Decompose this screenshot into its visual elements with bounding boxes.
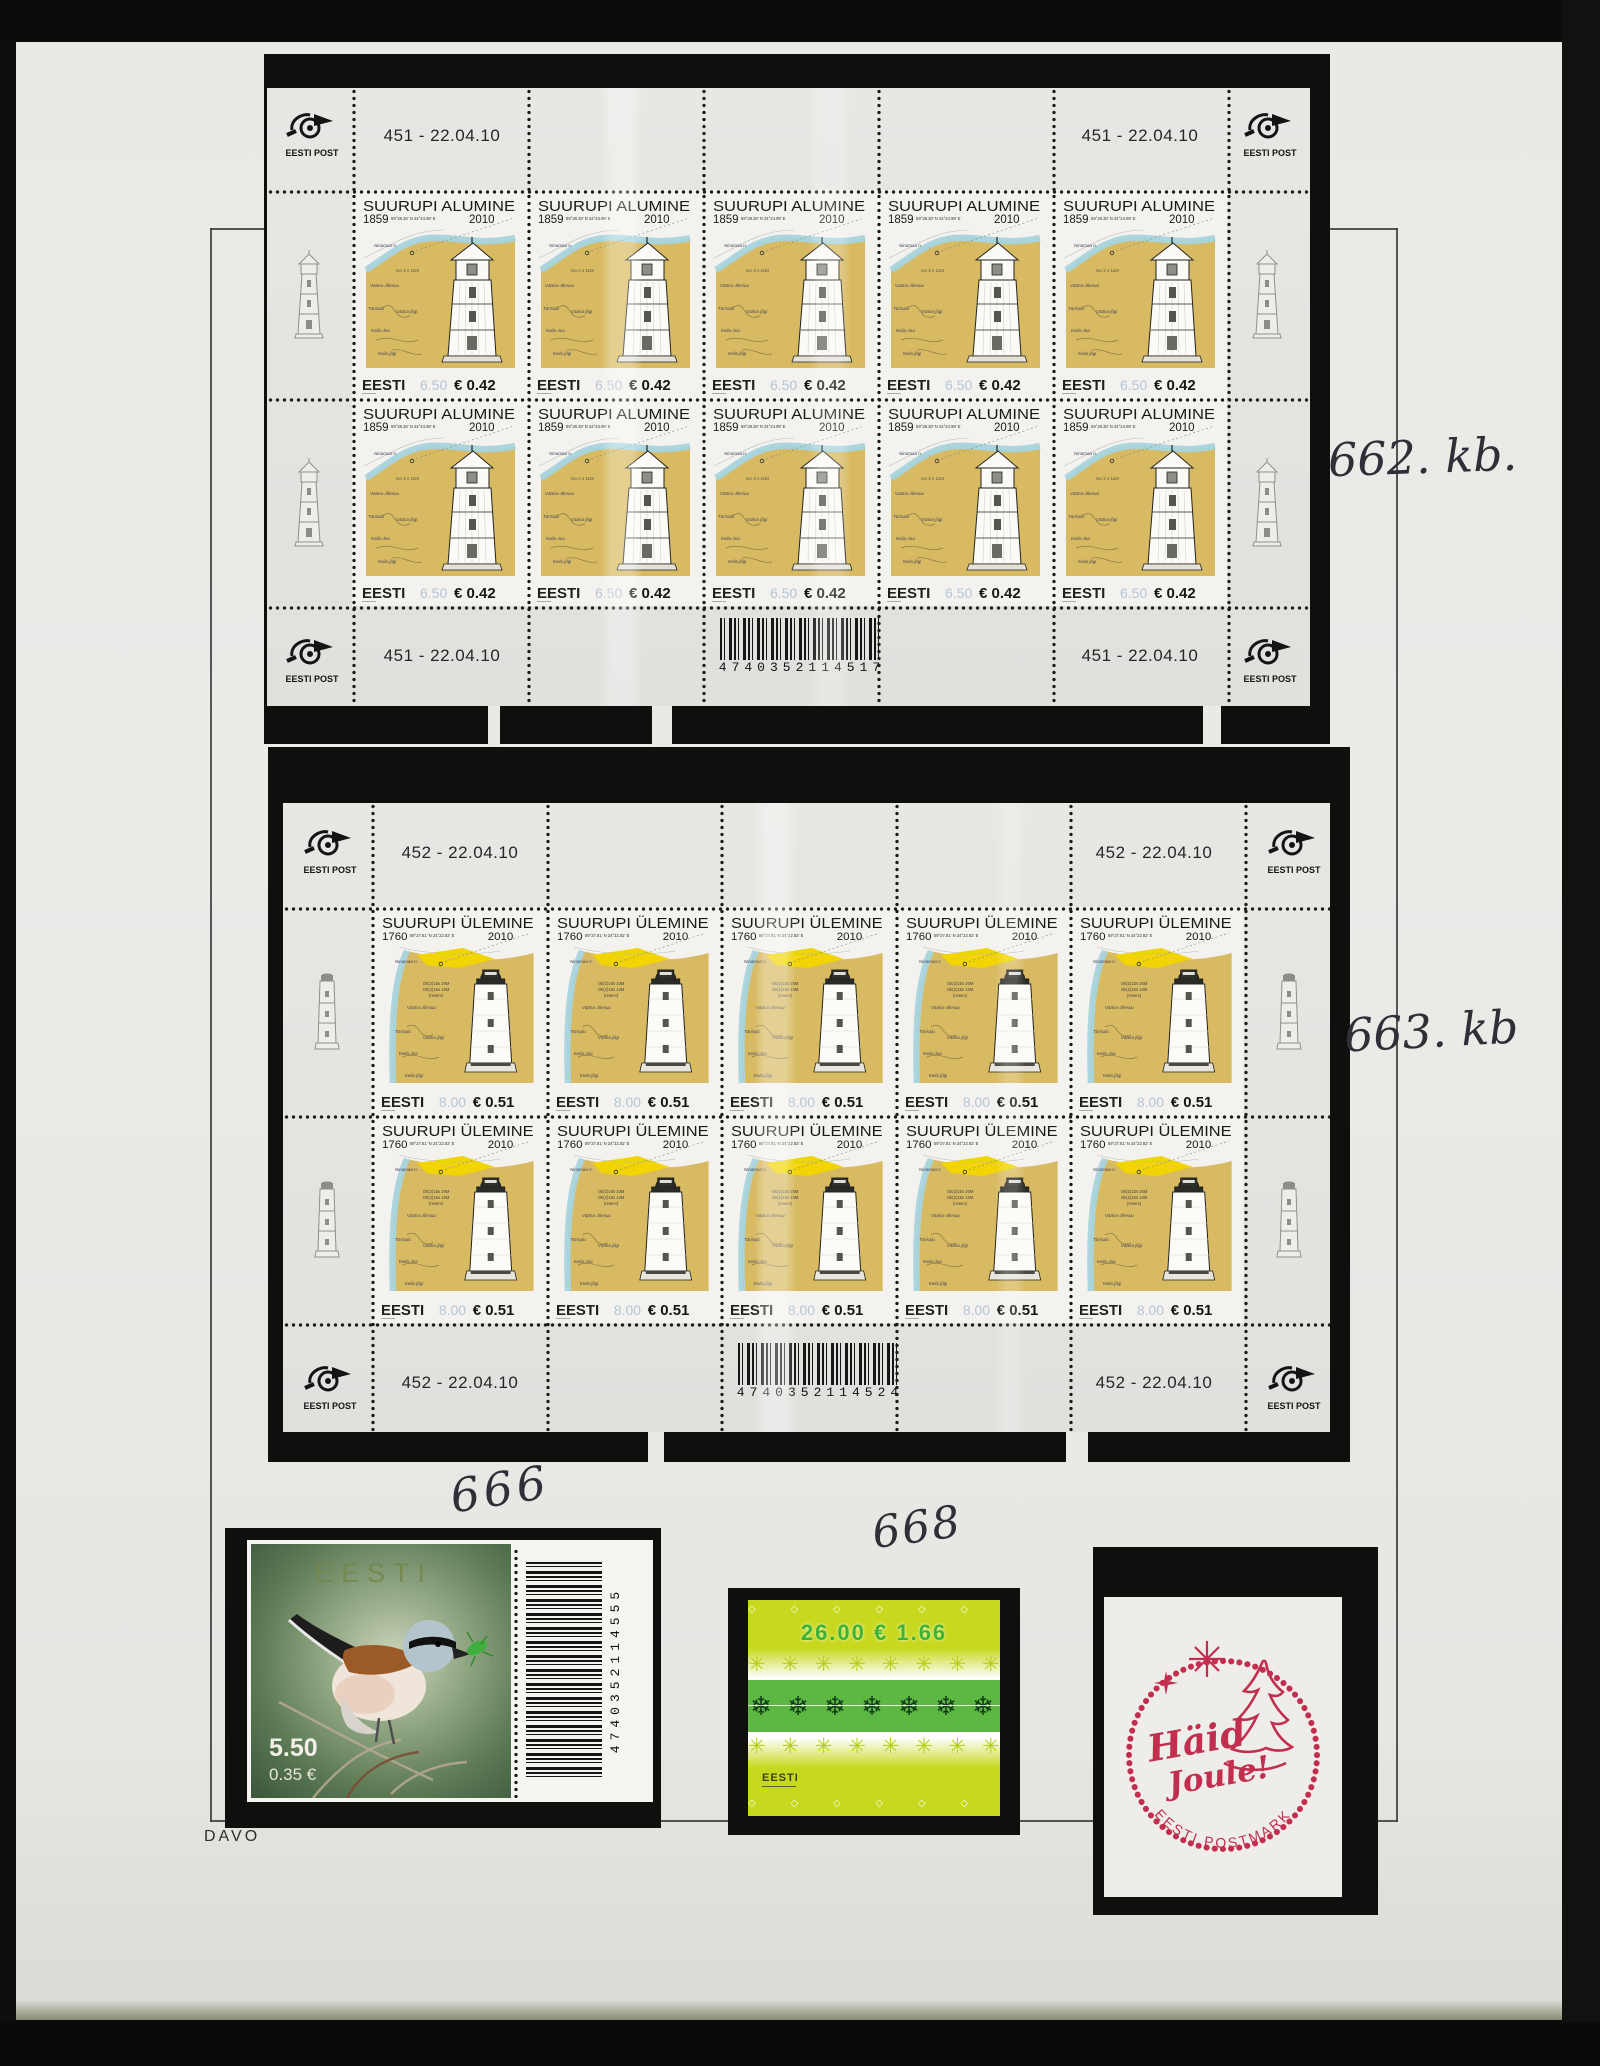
svg-text:Ninamaa n.: Ninamaa n.: [1074, 451, 1097, 456]
stamp-year-built: 1859: [1063, 422, 1089, 434]
stamp-euro-value: € 0.51: [647, 1094, 689, 1111]
stamp-kroon-value: 6.50: [1120, 377, 1147, 393]
stamp-year-issued: 2010: [819, 214, 845, 226]
stamp-suurupi-alumine: Ninamaa n. Iso 3 s 11M Vääna-Jõesuu Türi…: [877, 190, 1052, 398]
svg-text:Keila jõgi: Keila jõgi: [405, 1281, 424, 1286]
svg-text:(reserv): (reserv): [429, 1201, 444, 1206]
photo-of-album-page: EESTI POST EESTI POST EESTI POST: [0, 0, 1600, 2066]
svg-text:Keila jõgi: Keila jõgi: [405, 1073, 424, 1078]
stamp-title: SUURUPI ALUMINE: [1063, 406, 1215, 423]
svg-text:Keila jõgi: Keila jõgi: [580, 1073, 599, 1078]
stamp-suurupi-ulemine: Ninamaa n. Vääna-Jõesuu Türisalu Vääna j…: [1069, 1115, 1244, 1323]
stamp-country: EESTI: [1062, 585, 1105, 602]
svg-text:Vääna jõgi: Vääna jõgi: [423, 1243, 445, 1248]
svg-text:Ok(2)15s 10M: Ok(2)15s 10M: [947, 1195, 974, 1200]
stamp-suurupi-alumine: Ninamaa n. Iso 3 s 11M Vääna-Jõesuu Türi…: [702, 398, 877, 606]
svg-text:Keila jõgi: Keila jõgi: [728, 559, 747, 564]
svg-text:Vääna-Jõesuu: Vääna-Jõesuu: [720, 491, 750, 496]
mount-gap: [648, 1432, 664, 1464]
stamp-kroon-value: 8.00: [613, 1094, 640, 1110]
stamp-euro-value: € 0.51: [822, 1094, 864, 1111]
stamp-year-built: 1859: [538, 214, 564, 226]
svg-text:Türisalu: Türisalu: [919, 1029, 935, 1034]
svg-text:Vääna jõgi: Vääna jõgi: [1096, 517, 1118, 522]
stamp-kroon-value: 6.50: [1120, 585, 1147, 601]
svg-text:Vääna-Jõesuu: Vääna-Jõesuu: [1070, 491, 1100, 496]
stamp-year-issued: 2010: [469, 214, 495, 226]
svg-text:Keila-Joa: Keila-Joa: [546, 536, 565, 541]
stamp-kroon-value: 8.00: [788, 1302, 815, 1318]
svg-text:Ok(2)15s 10M: Ok(2)15s 10M: [772, 1195, 799, 1200]
stamp-sheet-452: EESTI POST EESTI POST EESTI POST: [283, 803, 1330, 1432]
svg-text:Ninamaa n.: Ninamaa n.: [1074, 243, 1097, 248]
svg-text:Vääna jõgi: Vääna jõgi: [947, 1035, 969, 1040]
eesti-post-logo: EESTI POST: [1261, 825, 1327, 877]
stamp-year-issued: 2010: [837, 931, 862, 943]
stamp-euro-value: € 0.42: [1154, 377, 1196, 394]
stamp-suurupi-alumine: Ninamaa n. Iso 3 s 11M Vääna-Jõesuu Türi…: [702, 190, 877, 398]
stamp-year-issued: 2010: [469, 422, 495, 434]
stamp-year-built: 1760: [906, 931, 931, 943]
lighthouse-sketch-icon: [1274, 1175, 1304, 1263]
stamp-kroon-value: 6.50: [770, 585, 797, 601]
svg-text:Ninamaa n.: Ninamaa n.: [744, 959, 767, 964]
stamp-coordinates: 59°28.30′ N 24°24.99′ E: [916, 216, 961, 221]
stamp-coordinates: 59°27.81′ N 24°22.82′ E: [1108, 1141, 1153, 1146]
svg-text:Iso 3 s 11M: Iso 3 s 11M: [1096, 268, 1119, 273]
stamp-euro-value: € 0.42: [629, 377, 671, 394]
stamp-coordinates: 59°28.30′ N 24°24.99′ E: [1091, 216, 1136, 221]
svg-text:Iso 3 s 11M: Iso 3 s 11M: [396, 476, 419, 481]
stamp-country: EESTI: [381, 1094, 424, 1111]
svg-text:Iso 3 s 11M: Iso 3 s 11M: [1096, 476, 1119, 481]
stamp-year-issued: 2010: [1169, 422, 1195, 434]
stamp-coordinates: 59°27.81′ N 24°22.82′ E: [934, 1141, 979, 1146]
sheet-corner-code: 451 - 22.04.10: [1055, 126, 1225, 146]
svg-text:Keila jõgi: Keila jõgi: [378, 559, 397, 564]
svg-text:Iso 3 s 11M: Iso 3 s 11M: [921, 268, 944, 273]
handwritten-number-sheet1: 662. kb.: [1327, 427, 1518, 488]
stamp-year-built: 1760: [1080, 931, 1105, 943]
svg-text:Vääna-Jõesuu: Vääna-Jõesuu: [407, 1213, 436, 1218]
svg-text:Keila jõgi: Keila jõgi: [553, 351, 572, 356]
svg-text:Türisalu: Türisalu: [395, 1029, 411, 1034]
svg-text:Ok(2)15s 20M: Ok(2)15s 20M: [423, 1189, 450, 1194]
svg-text:Vääna-Jõesuu: Vääna-Jõesuu: [1105, 1005, 1134, 1010]
svg-text:Türisalu: Türisalu: [395, 1237, 411, 1242]
svg-text:Türisalu: Türisalu: [718, 514, 735, 519]
lighthouse-sketch-icon: [312, 1175, 342, 1263]
lighthouse-sketch-icon: [1274, 967, 1304, 1055]
svg-text:Vääna-Jõesuu: Vääna-Jõesuu: [756, 1213, 785, 1218]
svg-text:Vääna jõgi: Vääna jõgi: [597, 1243, 619, 1248]
svg-text:Ninamaa n.: Ninamaa n.: [570, 1167, 593, 1172]
stamp-coordinates: 59°28.30′ N 24°24.99′ E: [741, 216, 786, 221]
stamp-euro-value: 0.35 €: [269, 1765, 317, 1784]
svg-text:Ninamaa n.: Ninamaa n.: [570, 959, 593, 964]
stamp-title: SUURUPI ALUMINE: [538, 198, 690, 215]
svg-text:Vääna jõgi: Vääna jõgi: [571, 517, 593, 522]
svg-text:Keila-Joa: Keila-Joa: [574, 1051, 593, 1056]
svg-text:Keila-Joa: Keila-Joa: [399, 1051, 418, 1056]
stamp-year-issued: 2010: [662, 1139, 687, 1151]
stamp-kroon-value: 8.00: [963, 1094, 990, 1110]
svg-text:Ok(2)15s 20M: Ok(2)15s 20M: [1121, 1189, 1148, 1194]
sheet-corner-code: 452 - 22.04.10: [1069, 1373, 1239, 1393]
stamp-suurupi-ulemine: Ninamaa n. Vääna-Jõesuu Türisalu Vääna j…: [546, 1115, 721, 1323]
stamp-kroon-value: 6.50: [420, 585, 447, 601]
svg-text:Ninamaa n.: Ninamaa n.: [919, 1167, 942, 1172]
svg-text:Türisalu: Türisalu: [718, 306, 735, 311]
svg-text:Keila jõgi: Keila jõgi: [754, 1073, 773, 1078]
svg-text:Vääna-Jõesuu: Vääna-Jõesuu: [895, 283, 925, 288]
stamp-euro-value: € 0.51: [997, 1094, 1039, 1111]
svg-text:Ninamaa n.: Ninamaa n.: [724, 243, 747, 248]
svg-text:Ok(2)15s 10M: Ok(2)15s 10M: [423, 987, 450, 992]
svg-text:Keila-Joa: Keila-Joa: [896, 328, 915, 333]
stamp-kroon-value: 6.50: [945, 377, 972, 393]
svg-text:Vääna jõgi: Vääna jõgi: [1096, 309, 1118, 314]
stamp-year-issued: 2010: [1186, 1139, 1211, 1151]
stamp-country: EESTI: [712, 377, 755, 394]
svg-text:Keila-Joa: Keila-Joa: [1071, 328, 1090, 333]
svg-text:Ok(2)15s 20M: Ok(2)15s 20M: [597, 1189, 624, 1194]
lighthouse-sketch-icon: [1249, 454, 1285, 550]
svg-text:Ninamaa n.: Ninamaa n.: [744, 1167, 767, 1172]
svg-text:Ok(2)15s 10M: Ok(2)15s 10M: [947, 987, 974, 992]
svg-text:Ninamaa n.: Ninamaa n.: [549, 243, 572, 248]
eesti-post-label: EESTI POST: [1243, 674, 1297, 684]
svg-text:Türisalu: Türisalu: [744, 1237, 760, 1242]
stamp-country: EESTI: [556, 1302, 599, 1319]
stamp-country: EESTI: [537, 585, 580, 602]
svg-text:Ok(2)15s 20M: Ok(2)15s 20M: [947, 1189, 974, 1194]
stamp-year-issued: 2010: [994, 422, 1020, 434]
barcode: [738, 1343, 898, 1385]
stamp-suurupi-ulemine: Ninamaa n. Vääna-Jõesuu Türisalu Vääna j…: [720, 907, 895, 1115]
sheet-corner-code: 451 - 22.04.10: [1055, 646, 1225, 666]
stamp-year-built: 1859: [363, 422, 389, 434]
stamp-euro-value: € 0.42: [979, 377, 1021, 394]
stamp-country: EESTI: [362, 585, 405, 602]
stamp-coordinates: 59°27.81′ N 24°22.82′ E: [759, 933, 804, 938]
stamp-year-built: 1859: [888, 214, 914, 226]
svg-text:(reserv): (reserv): [778, 993, 793, 998]
stamp-kroon-value: 8.00: [613, 1302, 640, 1318]
stamp-year-built: 1760: [557, 931, 582, 943]
svg-text:Vääna jõgi: Vääna jõgi: [947, 1243, 969, 1248]
svg-text:Ninamaa n.: Ninamaa n.: [549, 451, 572, 456]
svg-text:Türisalu: Türisalu: [543, 514, 560, 519]
svg-text:Keila-Joa: Keila-Joa: [399, 1259, 418, 1264]
stamp-title: SUURUPI ALUMINE: [713, 406, 865, 423]
stamp-title: SUURUPI ÜLEMINE: [906, 1122, 1058, 1140]
stamp-value-line: 26.00 € 1.66: [748, 1618, 1000, 1648]
svg-text:Ninamaa n.: Ninamaa n.: [724, 451, 747, 456]
svg-text:Keila jõgi: Keila jõgi: [929, 1281, 948, 1286]
photo-edge-right: [1562, 0, 1600, 2066]
stamp-suurupi-alumine: Ninamaa n. Iso 3 s 11M Vääna-Jõesuu Türi…: [527, 398, 702, 606]
svg-text:Keila-Joa: Keila-Joa: [574, 1259, 593, 1264]
svg-text:Ninamaa n.: Ninamaa n.: [899, 451, 922, 456]
stamp-year-built: 1859: [713, 422, 739, 434]
svg-text:Vääna jõgi: Vääna jõgi: [746, 309, 768, 314]
sheet-corner-code: 451 - 22.04.10: [357, 646, 527, 666]
svg-text:Keila jõgi: Keila jõgi: [1078, 559, 1097, 564]
svg-text:Keila jõgi: Keila jõgi: [1103, 1073, 1122, 1078]
stamp-kroon-value: 6.50: [770, 377, 797, 393]
stamp-title: SUURUPI ÜLEMINE: [382, 1122, 534, 1140]
svg-text:Keila-Joa: Keila-Joa: [371, 536, 390, 541]
svg-text:Vääna-Jõesuu: Vääna-Jõesuu: [582, 1005, 611, 1010]
svg-text:Türisalu: Türisalu: [1068, 514, 1085, 519]
svg-text:Keila-Joa: Keila-Joa: [1071, 536, 1090, 541]
stamp-coordinates: 59°28.30′ N 24°24.99′ E: [1091, 424, 1136, 429]
svg-text:Vääna jõgi: Vääna jõgi: [571, 309, 593, 314]
snowflake-row-light: ✳ ✳ ✳ ✳ ✳ ✳ ✳ ✳: [748, 1652, 1000, 1678]
svg-text:Ninamaa n.: Ninamaa n.: [919, 959, 942, 964]
stamp-year-built: 1859: [888, 422, 914, 434]
eesti-post-logo: EESTI POST: [297, 825, 363, 877]
stamp-kroon-value: 6.50: [595, 377, 622, 393]
lighthouse-sketch-icon: [291, 246, 327, 342]
stamp-year-built: 1760: [557, 1139, 582, 1151]
stamp-suurupi-alumine: Ninamaa n. Iso 3 s 11M Vääna-Jõesuu Türi…: [877, 398, 1052, 606]
stamp-country: EESTI: [887, 585, 930, 602]
handwritten-number-sheet2: 663. kb: [1343, 999, 1520, 1062]
stamp-suurupi-ulemine: Ninamaa n. Vääna-Jõesuu Türisalu Vääna j…: [720, 1115, 895, 1323]
stamp-row: Ninamaa n. Iso 3 s 11M Vääna-Jõesuu Türi…: [352, 398, 1227, 606]
stamp-year-built: 1760: [731, 1139, 756, 1151]
svg-text:Vääna jõgi: Vääna jõgi: [746, 517, 768, 522]
svg-text:Ok(2)15s 10M: Ok(2)15s 10M: [1121, 987, 1148, 992]
svg-text:Vääna jõgi: Vääna jõgi: [921, 517, 943, 522]
svg-text:Keila jõgi: Keila jõgi: [728, 351, 747, 356]
stamp-title: SUURUPI ÜLEMINE: [382, 914, 534, 932]
svg-text:Ok(2)15s 20M: Ok(2)15s 20M: [772, 1189, 799, 1194]
sheet-corner-code: 452 - 22.04.10: [375, 843, 545, 863]
stamp-year-built: 1760: [731, 931, 756, 943]
svg-text:Iso 3 s 11M: Iso 3 s 11M: [746, 268, 769, 273]
svg-text:Ninamaa n.: Ninamaa n.: [395, 1167, 418, 1172]
stamp-country: EESTI: [362, 377, 405, 394]
svg-text:Iso 3 s 11M: Iso 3 s 11M: [571, 268, 594, 273]
barcode-digits: 4740352114524: [725, 1385, 915, 1400]
svg-text:Vääna jõgi: Vääna jõgi: [772, 1243, 794, 1248]
lighthouse-sketch-icon: [291, 454, 327, 550]
stamp-year-issued: 2010: [1012, 931, 1037, 943]
svg-text:Keila-Joa: Keila-Joa: [748, 1051, 767, 1056]
stamp-euro-value: € 0.51: [473, 1094, 515, 1111]
svg-text:Vääna jõgi: Vääna jõgi: [396, 309, 418, 314]
svg-text:Vääna jõgi: Vääna jõgi: [423, 1035, 445, 1040]
stamp-euro-value: € 0.51: [1171, 1094, 1213, 1111]
stamp-kroon-value: 8.00: [1137, 1094, 1164, 1110]
stamp-coordinates: 59°27.81′ N 24°22.82′ E: [1108, 933, 1153, 938]
svg-text:Ok(2)15s 10M: Ok(2)15s 10M: [772, 987, 799, 992]
stamp-coordinates: 59°28.30′ N 24°24.99′ E: [566, 216, 611, 221]
eesti-post-label: EESTI POST: [285, 148, 339, 158]
eesti-post-label: EESTI POST: [303, 865, 357, 875]
sheet-corner-code: 452 - 22.04.10: [1069, 843, 1239, 863]
stamp-title: SUURUPI ALUMINE: [713, 198, 865, 215]
stamp-country: EESTI: [1062, 377, 1105, 394]
svg-text:Vääna-Jõesuu: Vääna-Jõesuu: [545, 491, 575, 496]
svg-text:Keila-Joa: Keila-Joa: [546, 328, 565, 333]
stamp-euro-value: € 0.42: [454, 585, 496, 602]
page-frame-left: [210, 228, 212, 1822]
stamp-coordinates: 59°27.81′ N 24°22.82′ E: [410, 933, 455, 938]
barcode: [720, 618, 880, 660]
svg-text:Türisalu: Türisalu: [368, 514, 385, 519]
svg-text:Keila-Joa: Keila-Joa: [1097, 1051, 1116, 1056]
svg-text:Türisalu: Türisalu: [1093, 1029, 1109, 1034]
stamp-year-built: 1760: [1080, 1139, 1105, 1151]
svg-text:Türisalu: Türisalu: [570, 1237, 586, 1242]
stamp-year-issued: 2010: [488, 1139, 513, 1151]
svg-text:Keila-Joa: Keila-Joa: [896, 536, 915, 541]
stamp-kroon-value: 8.00: [439, 1302, 466, 1318]
eesti-post-label: EESTI POST: [1267, 865, 1321, 875]
svg-text:Keila-Joa: Keila-Joa: [721, 328, 740, 333]
stamp-coordinates: 59°28.30′ N 24°24.99′ E: [916, 424, 961, 429]
stamp-kroon-value: 6.50: [595, 585, 622, 601]
stamp-coordinates: 59°27.81′ N 24°22.82′ E: [585, 933, 630, 938]
stamp-title: SUURUPI ALUMINE: [888, 198, 1040, 215]
ring-text: EESTI POSTMARK: [1152, 1806, 1294, 1851]
stamp-sheet-451: EESTI POST EESTI POST EESTI POST: [267, 88, 1310, 706]
svg-text:(reserv): (reserv): [778, 1201, 793, 1206]
svg-text:Keila-Joa: Keila-Joa: [748, 1259, 767, 1264]
svg-text:Ok(2)15s 10M: Ok(2)15s 10M: [597, 1195, 624, 1200]
svg-text:Keila jõgi: Keila jõgi: [754, 1281, 773, 1286]
stamp-country: EESTI: [905, 1302, 948, 1319]
stamp-kroon-value: 8.00: [439, 1094, 466, 1110]
stamp-euro-value: € 0.42: [454, 377, 496, 394]
stamp-suurupi-alumine: Ninamaa n. Iso 3 s 11M Vääna-Jõesuu Türi…: [1052, 398, 1227, 606]
svg-text:Iso 3 s 11M: Iso 3 s 11M: [921, 476, 944, 481]
stamp-suurupi-ulemine: Ninamaa n. Vääna-Jõesuu Türisalu Vääna j…: [895, 907, 1070, 1115]
stamp-year-issued: 2010: [644, 214, 670, 226]
stamp-title: SUURUPI ÜLEMINE: [557, 914, 709, 932]
stamp-euro-value: € 0.42: [629, 585, 671, 602]
diamond-motif-row: ◇ ◇ ◇ ◇ ◇ ◇ ◇ ◇: [748, 1796, 1000, 1812]
stamp-coordinates: 59°28.30′ N 24°24.99′ E: [391, 216, 436, 221]
barcode: [526, 1562, 602, 1778]
stamp-euro-value: € 0.51: [997, 1302, 1039, 1319]
svg-text:(reserv): (reserv): [1127, 1201, 1142, 1206]
barcode-digits: 4740352114555: [608, 1560, 623, 1780]
stamp-year-built: 1859: [1063, 214, 1089, 226]
stamp-suurupi-alumine: Ninamaa n. Iso 3 s 11M Vääna-Jõesuu Türi…: [352, 398, 527, 606]
svg-text:Keila-Joa: Keila-Joa: [371, 328, 390, 333]
svg-text:Iso 3 s 11M: Iso 3 s 11M: [571, 476, 594, 481]
svg-text:Vääna-Jõesuu: Vääna-Jõesuu: [756, 1005, 785, 1010]
svg-text:Türisalu: Türisalu: [744, 1029, 760, 1034]
svg-text:Keila-Joa: Keila-Joa: [1097, 1259, 1116, 1264]
svg-text:Ok(2)15s 20M: Ok(2)15s 20M: [947, 981, 974, 986]
stamp-country: EESTI: [730, 1094, 773, 1111]
stamp-year-issued: 2010: [837, 1139, 862, 1151]
eesti-post-logo: EESTI POST: [279, 634, 345, 686]
svg-text:Vääna-Jõesuu: Vääna-Jõesuu: [370, 283, 400, 288]
svg-text:Vääna-Jõesuu: Vääna-Jõesuu: [1105, 1213, 1134, 1218]
stamp-suurupi-alumine: Ninamaa n. Iso 3 s 11M Vääna-Jõesuu Türi…: [1052, 190, 1227, 398]
svg-text:Keila jõgi: Keila jõgi: [378, 351, 397, 356]
stamp-suurupi-ulemine: Ninamaa n. Vääna-Jõesuu Türisalu Vääna j…: [895, 1115, 1070, 1323]
star-burst-icon: [1189, 1641, 1225, 1677]
stamp-euro-value: € 0.51: [822, 1302, 864, 1319]
svg-text:Ok(2)15s 20M: Ok(2)15s 20M: [597, 981, 624, 986]
stamp-country: EESTI: [730, 1302, 773, 1319]
photo-edge-top: [0, 0, 1600, 42]
svg-text:Vääna-Jõesuu: Vääna-Jõesuu: [931, 1213, 960, 1218]
stamp-title: SUURUPI ÜLEMINE: [906, 914, 1058, 932]
stamp-title: SUURUPI ALUMINE: [1063, 198, 1215, 215]
stamp-coordinates: 59°28.30′ N 24°24.99′ E: [566, 424, 611, 429]
sheet-corner-code: 452 - 22.04.10: [375, 1373, 545, 1393]
eesti-post-label: EESTI POST: [1267, 1401, 1321, 1411]
lighthouse-sketch-icon: [1249, 246, 1285, 342]
svg-text:Vääna-Jõesuu: Vääna-Jõesuu: [407, 1005, 436, 1010]
svg-text:Vääna-Jõesuu: Vääna-Jõesuu: [720, 283, 750, 288]
mount-gap: [1203, 706, 1221, 746]
diamond-motif-row: ◇ ◇ ◇ ◇ ◇ ◇ ◇ ◇: [748, 1602, 1000, 1618]
eesti-post-logo: EESTI POST: [279, 108, 345, 160]
svg-text:(reserv): (reserv): [953, 1201, 968, 1206]
svg-text:Ninamaa n.: Ninamaa n.: [1093, 1167, 1116, 1172]
svg-text:Vääna jõgi: Vääna jõgi: [396, 517, 418, 522]
sheet-corner-code: 451 - 22.04.10: [357, 126, 527, 146]
stamp-title: SUURUPI ALUMINE: [363, 406, 515, 423]
svg-text:Iso 3 s 11M: Iso 3 s 11M: [396, 268, 419, 273]
svg-text:Vääna-Jõesuu: Vääna-Jõesuu: [895, 491, 925, 496]
svg-text:Keila-Joa: Keila-Joa: [721, 536, 740, 541]
svg-text:Iso 3 s 11M: Iso 3 s 11M: [746, 476, 769, 481]
stamp-title: SUURUPI ALUMINE: [363, 198, 515, 215]
svg-text:Türisalu: Türisalu: [368, 306, 385, 311]
stamp-euro-value: € 0.42: [804, 377, 846, 394]
stamp-country: EESTI: [537, 377, 580, 394]
barcode-digits: 4740352114517: [707, 660, 897, 675]
stamp-country: EESTI: [887, 377, 930, 394]
svg-text:Türisalu: Türisalu: [570, 1029, 586, 1034]
stamp-year-issued: 2010: [488, 931, 513, 943]
stamp-year-built: 1859: [538, 422, 564, 434]
stamp-row: Ninamaa n. Vääna-Jõesuu Türisalu Vääna j…: [371, 907, 1244, 1115]
stamp-year-built: 1760: [382, 931, 407, 943]
svg-text:Keila jõgi: Keila jõgi: [580, 1281, 599, 1286]
svg-text:Vääna-Jõesuu: Vääna-Jõesuu: [370, 491, 400, 496]
stamp-title: SUURUPI ÜLEMINE: [557, 1122, 709, 1140]
mount-gap: [488, 706, 500, 746]
svg-text:Keila jõgi: Keila jõgi: [553, 559, 572, 564]
stamp-suurupi-alumine: Ninamaa n. Iso 3 s 11M Vääna-Jõesuu Türi…: [352, 190, 527, 398]
stamp-title: SUURUPI ALUMINE: [538, 406, 690, 423]
svg-text:(reserv): (reserv): [603, 1201, 618, 1206]
svg-text:Türisalu: Türisalu: [893, 514, 910, 519]
svg-text:Türisalu: Türisalu: [919, 1237, 935, 1242]
svg-text:Vääna jõgi: Vääna jõgi: [921, 309, 943, 314]
stamp-suurupi-alumine: Ninamaa n. Iso 3 s 11M Vääna-Jõesuu Türi…: [527, 190, 702, 398]
stamp-year-built: 1760: [382, 1139, 407, 1151]
svg-text:Türisalu: Türisalu: [1068, 306, 1085, 311]
stamp-year-built: 1760: [906, 1139, 931, 1151]
stamp-country: EESTI: [712, 585, 755, 602]
stamp-year-built: 1859: [363, 214, 389, 226]
stamp-title: SUURUPI ÜLEMINE: [1080, 914, 1232, 932]
svg-text:(reserv): (reserv): [1127, 993, 1142, 998]
